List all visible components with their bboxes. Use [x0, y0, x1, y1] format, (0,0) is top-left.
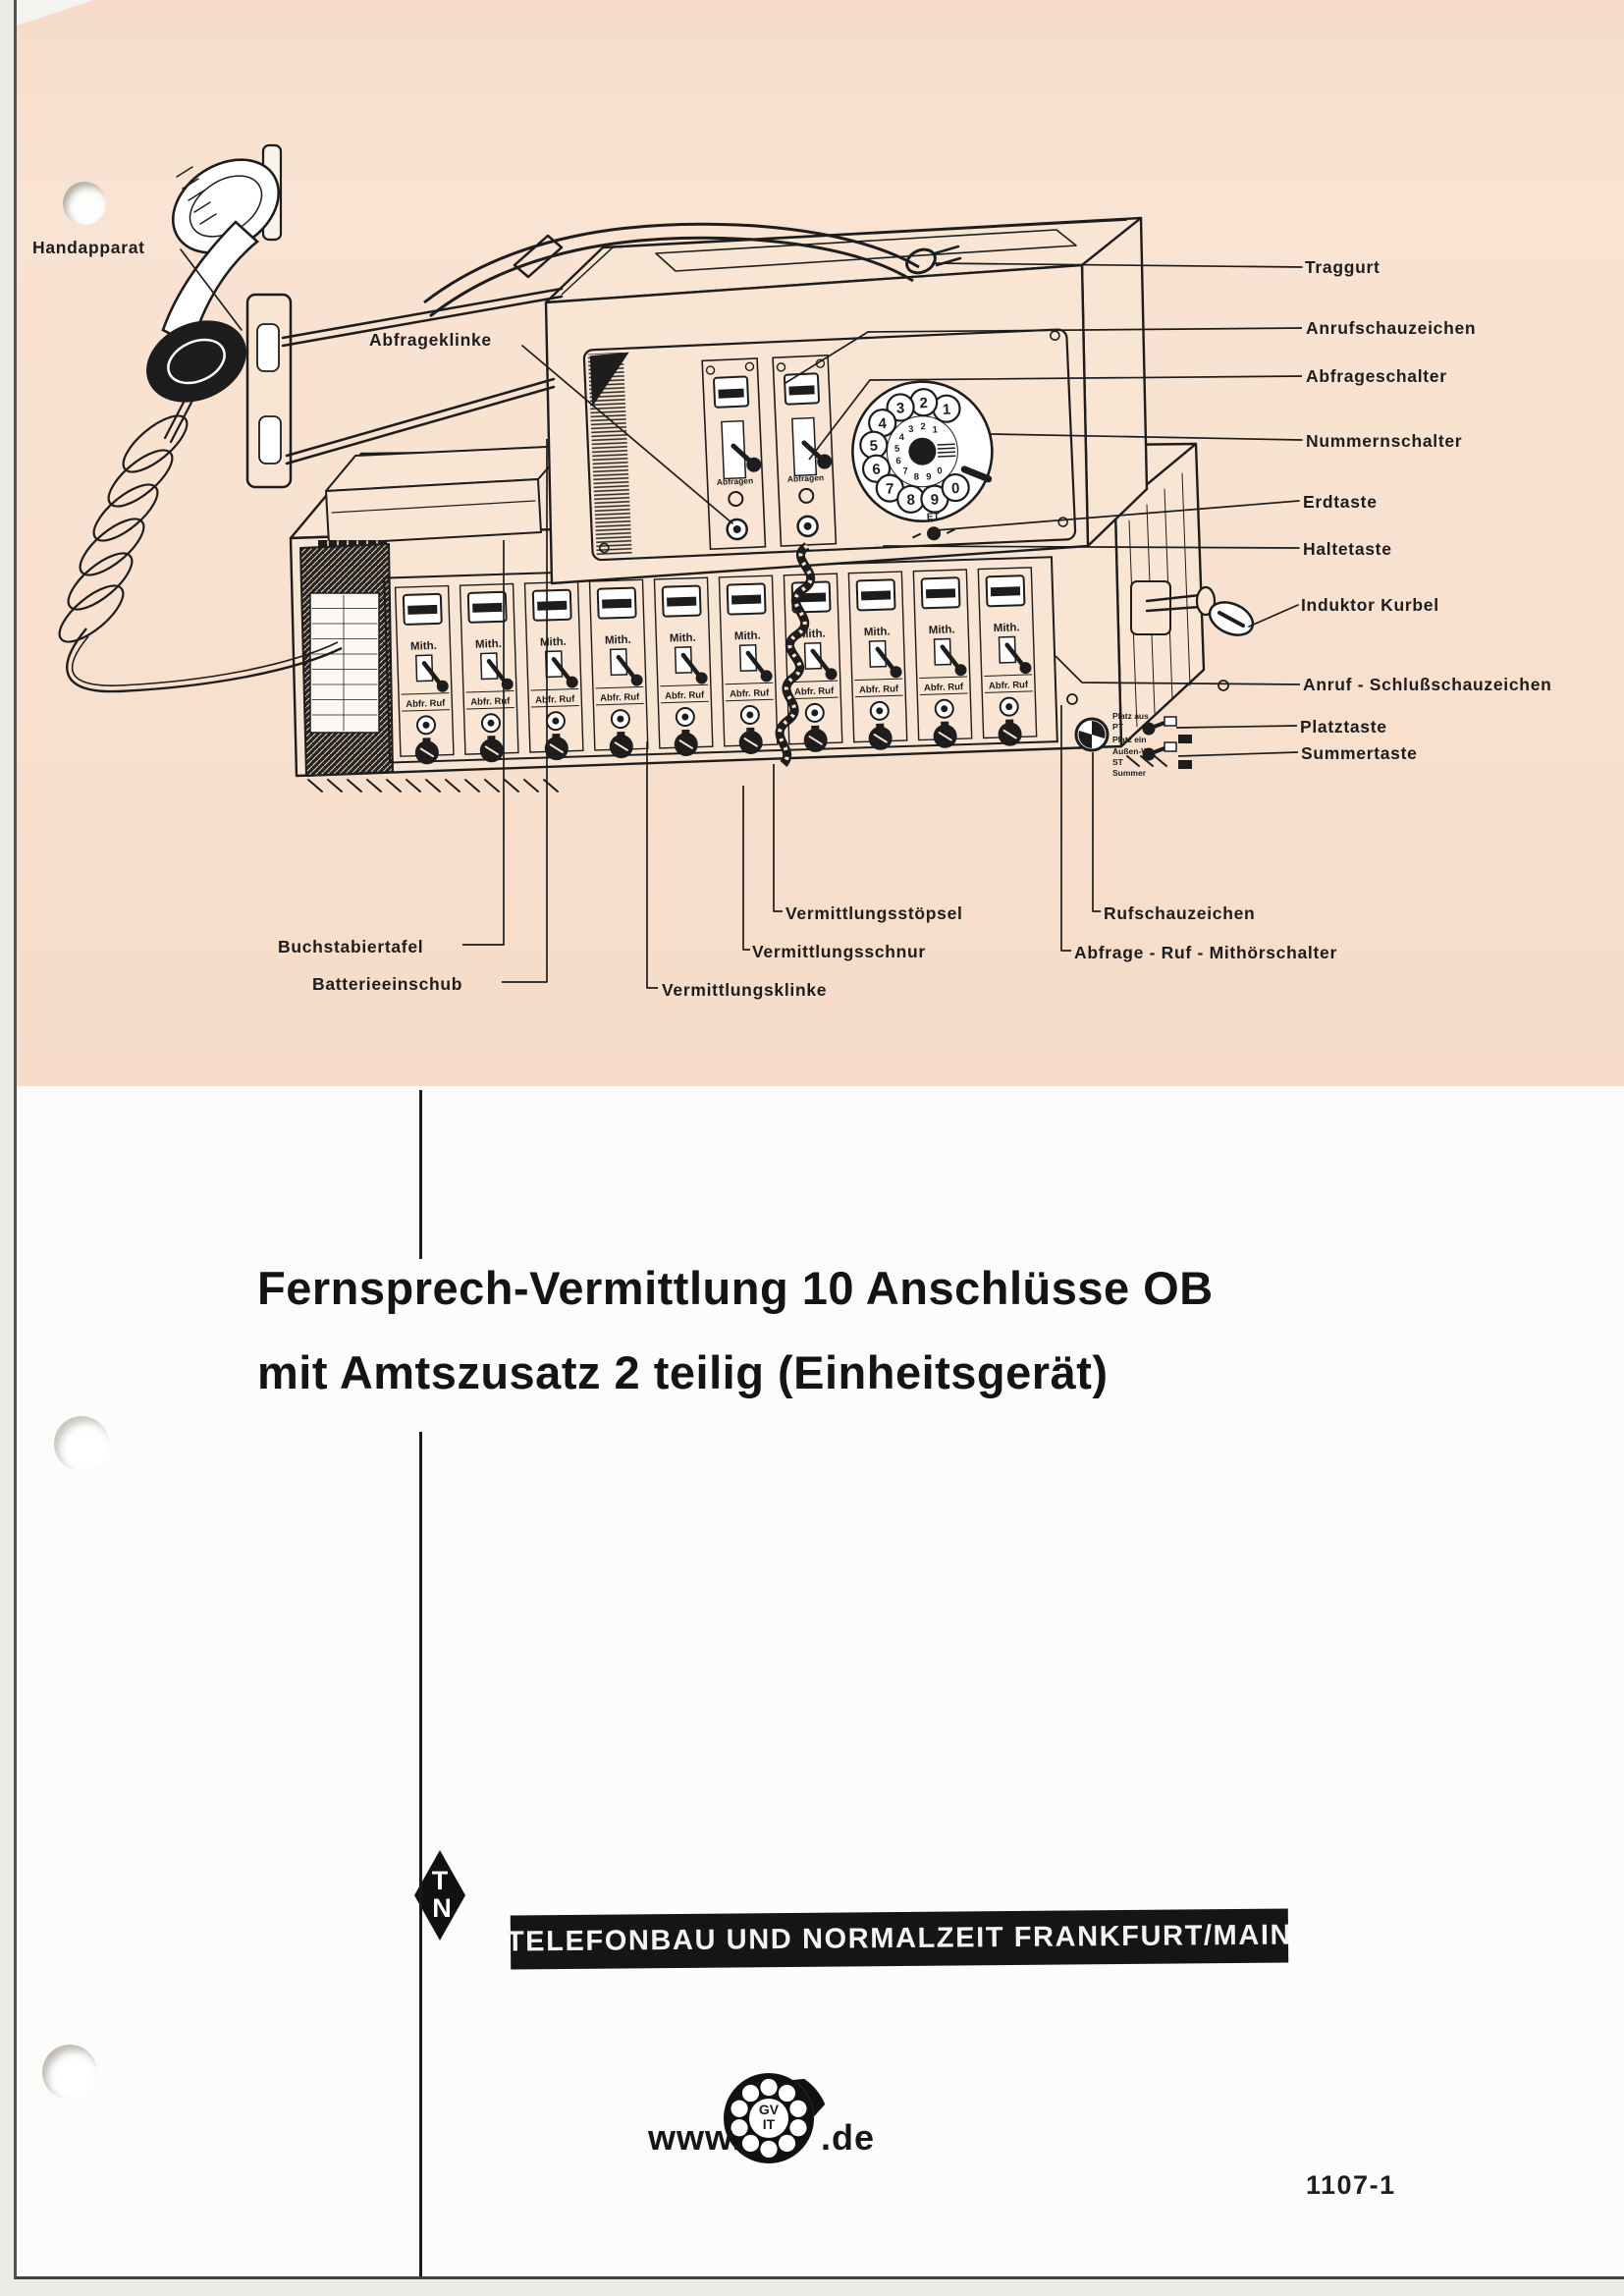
callout-vermittlungsklinke: Vermittlungsklinke: [662, 980, 827, 1001]
callout-platztaste: Platztaste: [1300, 717, 1387, 738]
page-title-line2: mit Amtszusatz 2 teilig (Einheitsgerät): [257, 1345, 1109, 1399]
callout-anruf-schlussschauzeichen: Anruf - Schlußschauzeichen: [1303, 675, 1552, 695]
callout-rufschauzeichen: Rufschauzeichen: [1104, 903, 1255, 924]
web-url-prefix: www.: [648, 2117, 743, 2159]
web-url-suffix: .de: [821, 2117, 875, 2159]
scanned-page: { "diagram": { "callouts": [ {"label": "…: [0, 0, 1624, 2296]
company-bar-text: TELEFONBAU UND NORMALZEIT FRANKFURT/MAIN: [507, 1920, 1292, 1959]
callout-handapparat: Handapparat: [32, 238, 145, 258]
callout-erdtaste: Erdtaste: [1303, 492, 1378, 513]
callout-abfrage-ruf-mithoerschalter: Abfrage - Ruf - Mithörschalter: [1074, 943, 1337, 963]
page-title-line1: Fernsprech-Vermittlung 10 Anschlüsse OB: [257, 1261, 1214, 1315]
callout-induktor-kurbel: Induktor Kurbel: [1301, 595, 1439, 616]
callout-anrufschauzeichen: Anrufschauzeichen: [1306, 318, 1476, 339]
callout-buchstabiertafel: Buchstabiertafel: [278, 937, 423, 957]
vertical-rule-upper: [419, 1090, 422, 1259]
callout-haltetaste: Haltetaste: [1303, 539, 1392, 560]
callout-traggurt: Traggurt: [1305, 257, 1380, 278]
doc-number: 1107-1: [1306, 2170, 1396, 2201]
punch-hole: [63, 182, 106, 225]
punch-hole: [42, 2045, 97, 2100]
punch-hole: [54, 1416, 109, 1471]
callout-summertaste: Summertaste: [1301, 743, 1418, 764]
callout-batterieeinschub: Batterieeinschub: [312, 974, 462, 995]
paper-corner-wedge: [17, 0, 93, 26]
callout-vermittlungsstoepsel: Vermittlungsstöpsel: [785, 903, 963, 924]
company-bar: TELEFONBAU UND NORMALZEIT FRANKFURT/MAIN: [511, 1909, 1288, 1970]
vertical-rule-lower: [419, 1432, 422, 2276]
callout-vermittlungsschnur: Vermittlungsschnur: [752, 942, 926, 962]
callout-nummernschalter: Nummernschalter: [1306, 431, 1462, 452]
callout-abfrageklinke: Abfrageklinke: [369, 330, 492, 351]
callout-abfrageschalter: Abfrageschalter: [1306, 366, 1447, 387]
